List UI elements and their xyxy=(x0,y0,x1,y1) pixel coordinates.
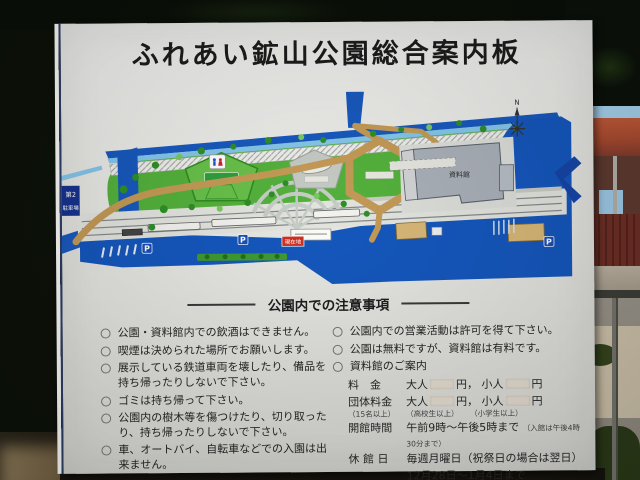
notice-item: ゴミは持ち帰って下さい。 xyxy=(101,392,333,408)
svg-text:現在地: 現在地 xyxy=(285,238,302,246)
notice-item: 公園内の樹木等を傷つけたり、切り取ったり、持ち帰ったりしないで下さい。 xyxy=(101,410,333,441)
group-fee-row: 団体料金 大人円， 小人円 xyxy=(348,394,583,410)
header-rule xyxy=(188,303,256,305)
notice-column-left: 公園・資料館内での飲酒はできません。 喫煙は決められた場所でお願いします。 展示… xyxy=(101,325,334,480)
erased-fee-value xyxy=(506,395,530,405)
notice-column-right: 公園内での営業活動は許可を得て下さい。 公園は無料ですが、資料館は有料です。 資… xyxy=(333,323,584,480)
sign-title: ふれあい鉱山公園総合案内板 xyxy=(61,30,593,73)
bullet-circle-icon xyxy=(101,414,111,424)
svg-text:P: P xyxy=(144,244,150,253)
erased-fee-value xyxy=(430,396,454,406)
foliage-left xyxy=(0,0,66,480)
museum-label: 資料館 xyxy=(449,170,470,179)
notice-item: 公園・資料館内での飲酒はできません。 xyxy=(101,325,333,341)
parking-icon: P xyxy=(544,236,554,246)
sky-patch xyxy=(599,190,623,214)
svg-text:駐車場: 駐車場 xyxy=(63,204,80,212)
closed-row-2: 12月28日～1月4日まで xyxy=(407,468,584,480)
toilet-icon xyxy=(209,155,225,169)
svg-text:N: N xyxy=(514,99,519,107)
bullet-circle-icon xyxy=(101,346,111,356)
parking-icon: P xyxy=(142,243,152,253)
svg-text:第2: 第2 xyxy=(65,190,76,199)
fee-row: 料 金 大人円， 小人円 xyxy=(348,377,583,393)
notice-item: 公園内での営業活動は許可を得て下さい。 xyxy=(333,323,583,339)
bullet-circle-icon xyxy=(333,327,343,337)
stream-left xyxy=(61,166,102,181)
bullet-circle-icon xyxy=(101,329,111,339)
bullet-circle-icon xyxy=(101,396,111,406)
museum-building: 資料館 xyxy=(399,137,517,214)
photo-scene: ふれあい鉱山公園総合案内板 xyxy=(0,0,640,480)
notice-section: 公園内での注意事項 公園・資料館内での飲酒はできません。 喫煙は決められた場所で… xyxy=(62,292,595,480)
utility-pole xyxy=(613,156,617,214)
svg-text:P: P xyxy=(240,236,246,245)
parking-icon: P xyxy=(238,235,248,245)
notice-item: 資料館のご案内 xyxy=(333,358,583,374)
closed-row: 休 館 日 毎週月曜日（祝祭日の場合は翌日） xyxy=(348,452,583,468)
hours-row: 開館時間 午前9時～午後5時まで （入館は午後4時30分まで） xyxy=(348,420,583,451)
station-building xyxy=(396,222,427,240)
sign-board: ふれあい鉱山公園総合案内板 xyxy=(58,20,595,474)
svg-text:P: P xyxy=(546,237,552,246)
road-top-entry xyxy=(346,92,364,128)
erased-fee-value xyxy=(430,379,454,389)
header-rule xyxy=(401,302,469,304)
notice-header-text: 公園内での注意事項 xyxy=(268,294,390,315)
bullet-circle-icon xyxy=(101,446,111,456)
museum-guide: 料 金 大人円， 小人円 団体料金 大人円， 小人円 xyxy=(348,377,584,480)
notice-item: 喫煙は決められた場所でお願いします。 xyxy=(101,343,333,359)
bullet-circle-icon xyxy=(333,362,343,372)
shed xyxy=(432,227,442,235)
notice-item: 公園は無料ですが、資料館は有料です。 xyxy=(333,341,583,357)
notice-item: 車、オートバイ、自転車などでの入園は出来ません。 xyxy=(101,442,333,473)
metal-post xyxy=(612,298,618,480)
you-are-here-marker: 現在地 xyxy=(282,236,304,246)
bullet-circle-icon xyxy=(101,364,111,374)
notice-header: 公園内での注意事項 xyxy=(62,292,594,316)
bullet-circle-icon xyxy=(333,345,343,355)
parking-lot-2-label: 第2 駐車場 xyxy=(62,186,80,216)
notice-item: 展示している鉄道車両を壊したり、備品を持ち帰ったりしないで下さい。 xyxy=(101,360,333,391)
park-map: 資料館 xyxy=(61,86,594,290)
erased-fee-value xyxy=(505,378,529,388)
fee-qualifiers: （15名以上） （高校生以上） （小学生以上） xyxy=(348,408,583,420)
plaza-sign xyxy=(365,172,393,179)
